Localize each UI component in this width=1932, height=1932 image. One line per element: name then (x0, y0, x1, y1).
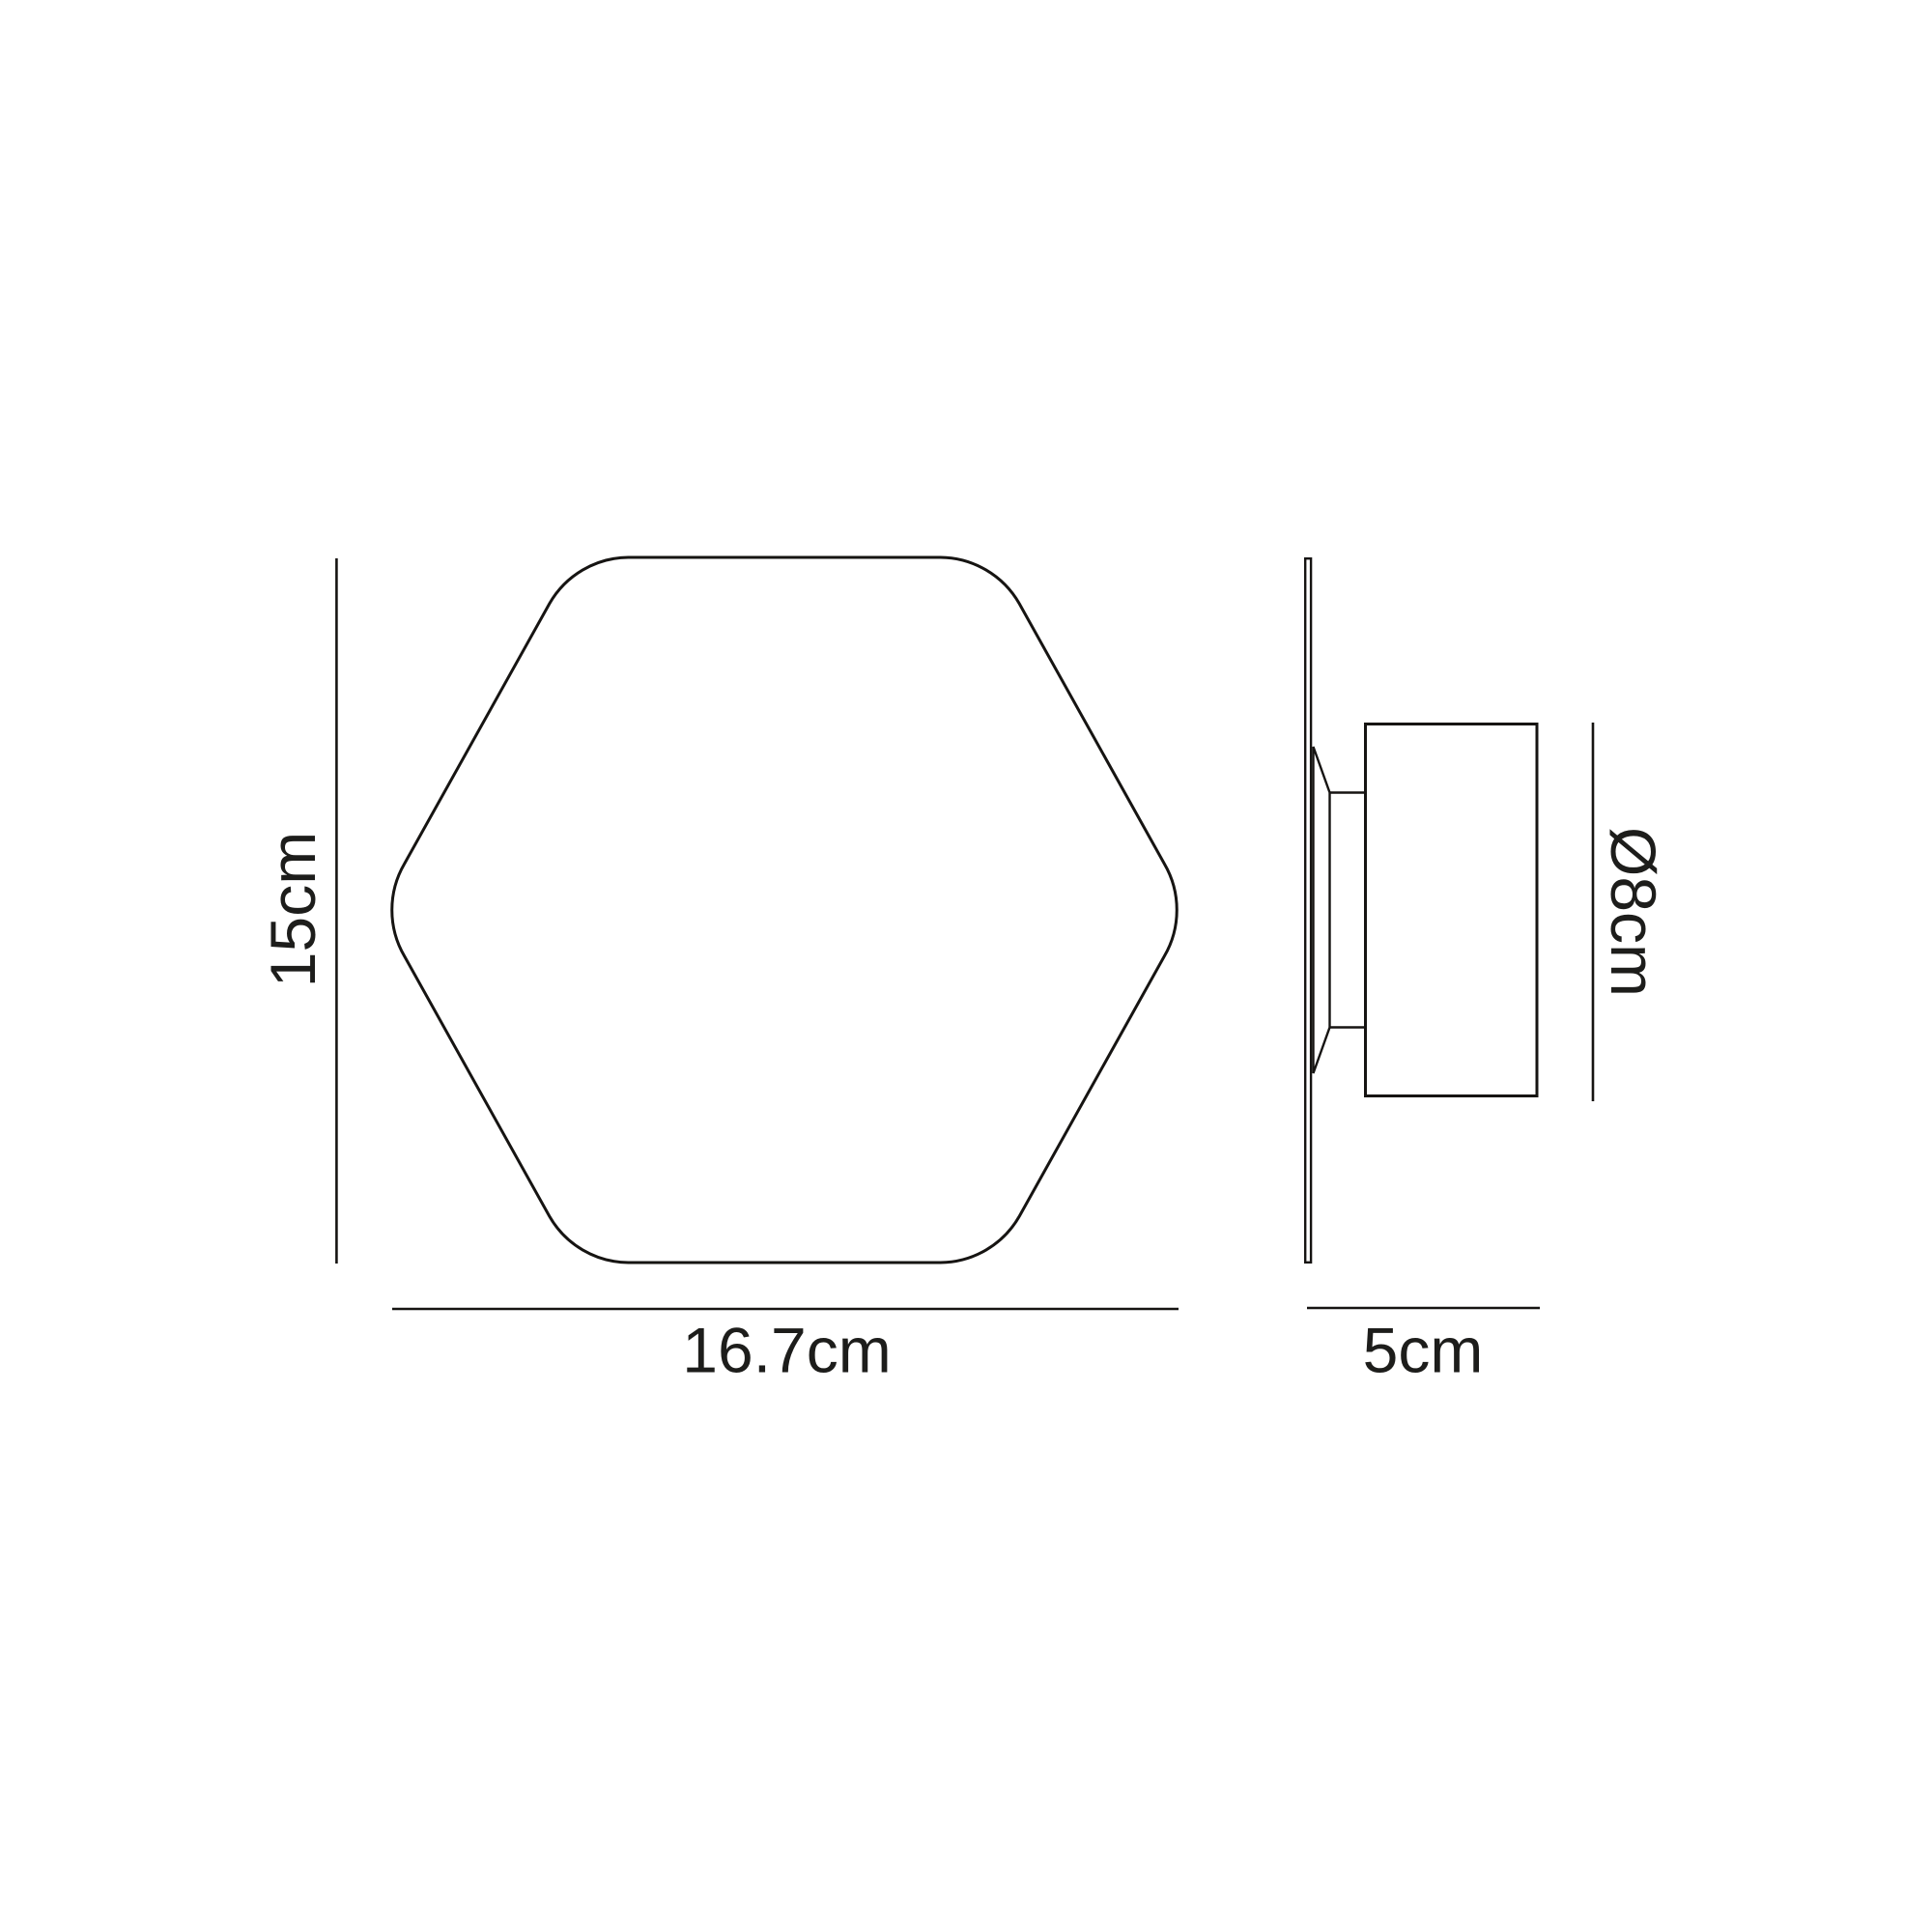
svg-text:15cm: 15cm (257, 832, 328, 987)
svg-text:Ø8cm: Ø8cm (1598, 827, 1669, 997)
svg-text:16.7cm: 16.7cm (682, 1315, 891, 1386)
svg-text:5cm: 5cm (1363, 1315, 1484, 1386)
